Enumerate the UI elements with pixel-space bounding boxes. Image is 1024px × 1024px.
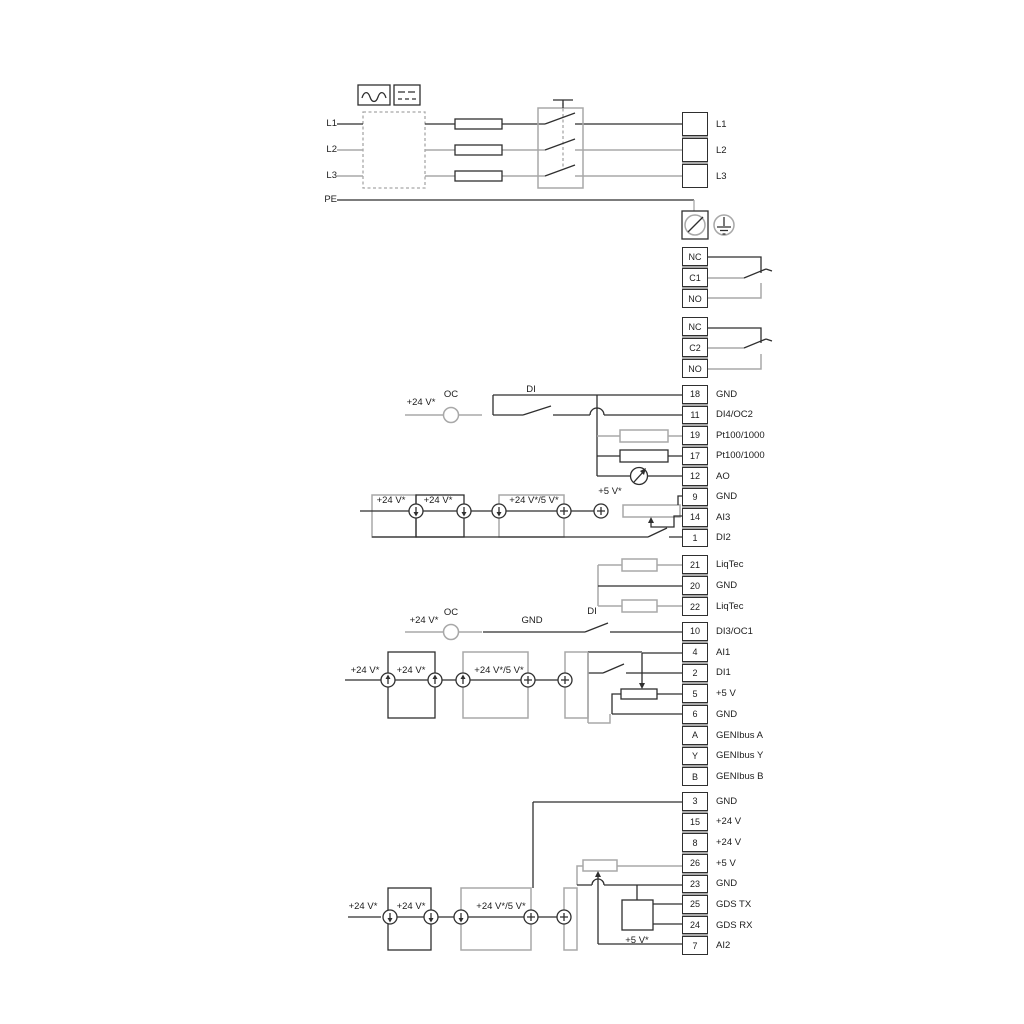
terminal-block-io3: 3 15 8 26 23 25 24 7 — [682, 792, 708, 955]
pt100-sensor — [597, 450, 682, 462]
terminal-label: GENIbus A — [716, 726, 764, 745]
pt100-sensor — [597, 430, 682, 442]
terminal-23: 23 — [682, 875, 708, 894]
terminal-label: GND — [716, 705, 764, 724]
terminal-3: 3 — [682, 792, 708, 811]
label-oc: OC — [444, 608, 458, 618]
terminal-26: 26 — [682, 854, 708, 873]
wiring-diagram-page: L1 L2 L3 PE L1 L2 L3 NC C1 NO NC C2 NO 1… — [0, 0, 1024, 1024]
terminal-labels-io3: GND +24 V +24 V +5 V GND GDS TX GDS RX A… — [716, 792, 752, 955]
terminal-20: 20 — [682, 576, 708, 595]
terminal-no: NO — [682, 359, 708, 378]
terminal-block-relay2: NC C2 NO — [682, 317, 708, 378]
terminal-label: DI2 — [716, 529, 765, 548]
terminal-label: +24 V — [716, 833, 752, 852]
relay2-contact — [707, 328, 772, 369]
terminal-2: 2 — [682, 664, 708, 683]
screw-terminal-icon — [682, 211, 708, 239]
label-5v: +5 V* — [625, 936, 649, 946]
terminal-18: 18 — [682, 385, 708, 404]
terminal-label: GND — [716, 792, 752, 811]
terminal-10: 10 — [682, 622, 708, 641]
label-24v: +24 V* — [407, 398, 436, 408]
label-di: DI — [526, 385, 536, 395]
ai1-cluster — [345, 652, 682, 723]
terminal-24: 24 — [682, 916, 708, 935]
terminal-label: L1 — [716, 112, 727, 136]
terminal-c2: C2 — [682, 338, 708, 357]
earth-ground-icon — [714, 215, 734, 235]
terminal-label: +5 V — [716, 854, 752, 873]
terminal-block-power — [682, 112, 708, 188]
terminal-15: 15 — [682, 813, 708, 832]
terminal-nc: NC — [682, 317, 708, 336]
terminal-b: B — [682, 767, 708, 786]
terminal-22: 22 — [682, 597, 708, 616]
terminal-labels-io1: GND DI4/OC2 Pt100/1000 Pt100/1000 AO GND… — [716, 385, 765, 547]
label-24v-5v: +24 V*/5 V* — [476, 902, 525, 912]
emc-filter-box — [363, 112, 425, 188]
label-24v: +24 V* — [410, 616, 439, 626]
terminal-label: DI3/OC1 — [716, 622, 764, 641]
terminal-label: GND — [716, 576, 743, 595]
di2-switch — [372, 528, 682, 537]
terminal-label: DI1 — [716, 664, 764, 683]
terminal-labels-power: L1 L2 L3 — [716, 112, 727, 188]
terminal-block-io1: 18 11 19 17 12 9 14 1 — [682, 385, 708, 547]
label-input-pe: PE — [315, 195, 337, 205]
label-24v-5v: +24 V*/5 V* — [509, 496, 558, 506]
terminal-cell — [682, 164, 708, 188]
pe-wire — [337, 200, 694, 211]
ai2-cluster — [348, 802, 682, 950]
di1-switch — [588, 664, 682, 673]
terminal-label: GDS RX — [716, 916, 752, 935]
terminal-label: Pt100/1000 — [716, 447, 765, 466]
terminal-5: 5 — [682, 684, 708, 703]
current-source-icon — [383, 910, 468, 924]
terminal-no: NO — [682, 289, 708, 308]
terminal-cell — [682, 138, 708, 162]
terminal-block-relay1: NC C1 NO — [682, 247, 708, 308]
label-24v: +24 V* — [351, 666, 380, 676]
terminal-label: L2 — [716, 138, 727, 162]
terminal-label: GND — [716, 488, 765, 507]
di3-switch — [483, 623, 682, 632]
terminal-block-liqtec: 21 20 22 — [682, 555, 708, 616]
terminal-cell — [682, 112, 708, 136]
gds-box — [622, 885, 682, 930]
disconnect-switch — [538, 100, 583, 188]
label-gnd: GND — [521, 616, 542, 626]
label-di: DI — [587, 607, 597, 617]
terminal-label: DI4/OC2 — [716, 406, 765, 425]
label-24v: +24 V* — [377, 496, 406, 506]
terminal-7: 7 — [682, 936, 708, 955]
terminal-17: 17 — [682, 447, 708, 466]
terminal-1: 1 — [682, 529, 708, 548]
terminal-label: +5 V — [716, 684, 764, 703]
terminal-label: AI3 — [716, 508, 765, 527]
terminal-labels-liqtec: LiqTec GND LiqTec — [716, 555, 743, 616]
terminal-label: LiqTec — [716, 597, 743, 616]
label-24v-5v: +24 V*/5 V* — [474, 666, 523, 676]
label-24v: +24 V* — [349, 902, 378, 912]
terminal-a: A — [682, 726, 708, 745]
terminal-label: L3 — [716, 164, 727, 188]
wiring-diagram — [0, 0, 1024, 1024]
label-input-l1: L1 — [315, 119, 337, 129]
terminal-label: +24 V — [716, 813, 752, 832]
terminal-label: AI1 — [716, 643, 764, 662]
current-source-icon — [409, 504, 506, 518]
label-input-l2: L2 — [315, 145, 337, 155]
label-5v: +5 V* — [598, 487, 622, 497]
terminal-y: Y — [682, 747, 708, 766]
terminal-21: 21 — [682, 555, 708, 574]
oc-source — [405, 625, 482, 640]
terminal-6: 6 — [682, 705, 708, 724]
label-24v: +24 V* — [397, 902, 426, 912]
fuse — [455, 119, 502, 129]
terminal-label: GDS TX — [716, 895, 752, 914]
terminal-label: AI2 — [716, 936, 752, 955]
terminal-label: GND — [716, 385, 765, 404]
potentiometer — [612, 689, 682, 714]
relay1-contact — [707, 257, 772, 298]
terminal-label: GND — [716, 875, 752, 894]
terminal-label: GENIbus Y — [716, 747, 764, 766]
terminal-12: 12 — [682, 467, 708, 486]
terminal-9: 9 — [682, 488, 708, 507]
terminal-label: GENIbus B — [716, 767, 764, 786]
label-24v: +24 V* — [424, 496, 453, 506]
terminal-nc: NC — [682, 247, 708, 266]
terminal-14: 14 — [682, 508, 708, 527]
label-input-l3: L3 — [315, 171, 337, 181]
terminal-block-io2: 10 4 2 5 6 A Y B — [682, 622, 708, 786]
terminal-4: 4 — [682, 643, 708, 662]
terminal-19: 19 — [682, 426, 708, 445]
terminal-label: AO — [716, 467, 765, 486]
potentiometer — [623, 496, 682, 527]
terminal-c1: C1 — [682, 268, 708, 287]
fuse — [455, 145, 502, 155]
dc-icon — [394, 85, 420, 105]
terminal-label: Pt100/1000 — [716, 426, 765, 445]
meter-icon — [597, 468, 682, 485]
terminal-label: LiqTec — [716, 555, 743, 574]
label-oc: OC — [444, 390, 458, 400]
terminal-8: 8 — [682, 833, 708, 852]
ac-icon — [358, 85, 390, 105]
terminal-25: 25 — [682, 895, 708, 914]
terminal-labels-io2: DI3/OC1 AI1 DI1 +5 V GND GENIbus A GENIb… — [716, 622, 764, 786]
terminal-11: 11 — [682, 406, 708, 425]
oc-source — [405, 408, 482, 423]
label-24v: +24 V* — [397, 666, 426, 676]
fuse — [455, 171, 502, 181]
